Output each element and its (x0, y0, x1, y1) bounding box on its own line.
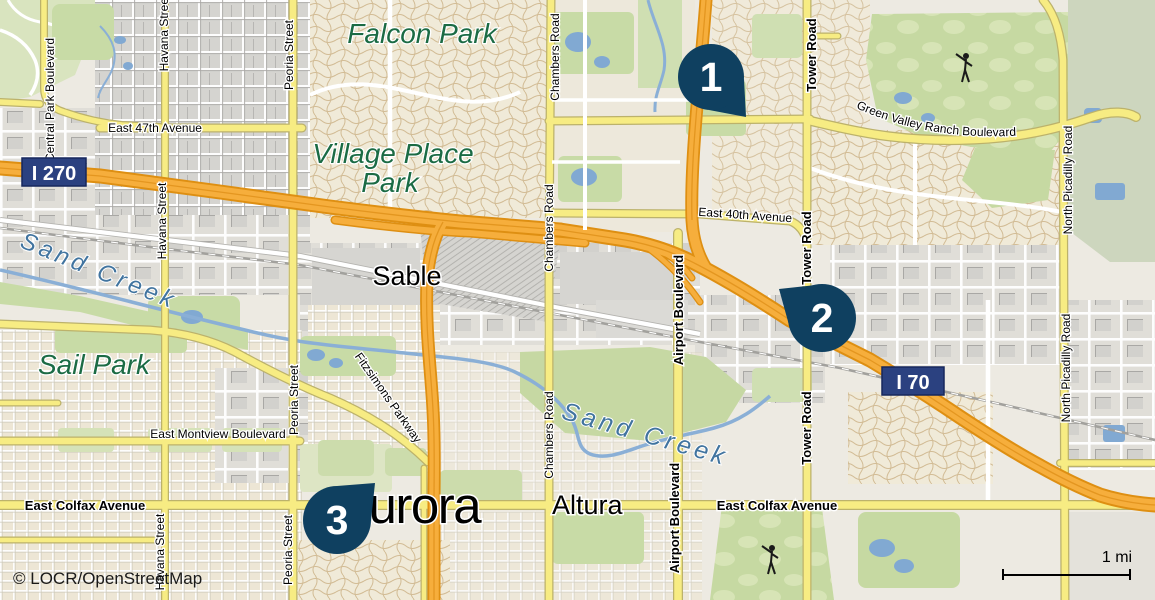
svg-text:North Picadilly Road: North Picadilly Road (1059, 314, 1073, 423)
svg-text:Falcon Park: Falcon Park (347, 18, 498, 49)
svg-text:I 70: I 70 (896, 372, 929, 394)
svg-text:1: 1 (700, 54, 723, 100)
svg-text:East Colfax Avenue: East Colfax Avenue (25, 498, 145, 513)
svg-text:Sable: Sable (372, 261, 441, 291)
svg-text:Tower Road: Tower Road (804, 18, 819, 91)
svg-text:East Montview Boulevard: East Montview Boulevard (150, 427, 285, 441)
svg-text:Chambers Road: Chambers Road (542, 391, 556, 478)
svg-text:Tower Road: Tower Road (799, 391, 814, 464)
svg-text:Peoria Street: Peoria Street (282, 19, 296, 90)
svg-text:Airport Boulevard: Airport Boulevard (667, 463, 682, 574)
svg-text:I 270: I 270 (32, 163, 76, 185)
svg-text:Park: Park (361, 167, 421, 198)
svg-text:Peoria Street: Peoria Street (287, 364, 301, 435)
svg-text:East 47th Avenue: East 47th Avenue (108, 121, 202, 135)
svg-text:Chambers Road: Chambers Road (542, 184, 556, 271)
svg-text:East Colfax Avenue: East Colfax Avenue (717, 498, 837, 513)
svg-text:Airport Boulevard: Airport Boulevard (671, 255, 686, 366)
svg-text:Havana Street: Havana Street (155, 182, 169, 259)
svg-text:Altura: Altura (552, 490, 624, 520)
svg-text:3: 3 (326, 497, 349, 543)
svg-text:Peoria Street: Peoria Street (281, 514, 295, 585)
svg-text:Village Place: Village Place (312, 138, 473, 169)
svg-text:Tower Road: Tower Road (799, 211, 814, 284)
svg-text:1 mi: 1 mi (1102, 549, 1132, 566)
svg-text:Havana Street: Havana Street (157, 0, 171, 71)
svg-text:Central Park Boulevard: Central Park Boulevard (43, 38, 57, 162)
svg-text:North Picadilly Road: North Picadilly Road (1061, 126, 1075, 235)
svg-text:2: 2 (811, 295, 834, 341)
svg-text:Sail Park: Sail Park (38, 349, 152, 380)
svg-text:Chambers Road: Chambers Road (548, 13, 562, 100)
svg-text:© LOCR/OpenStreetMap: © LOCR/OpenStreetMap (13, 569, 202, 588)
